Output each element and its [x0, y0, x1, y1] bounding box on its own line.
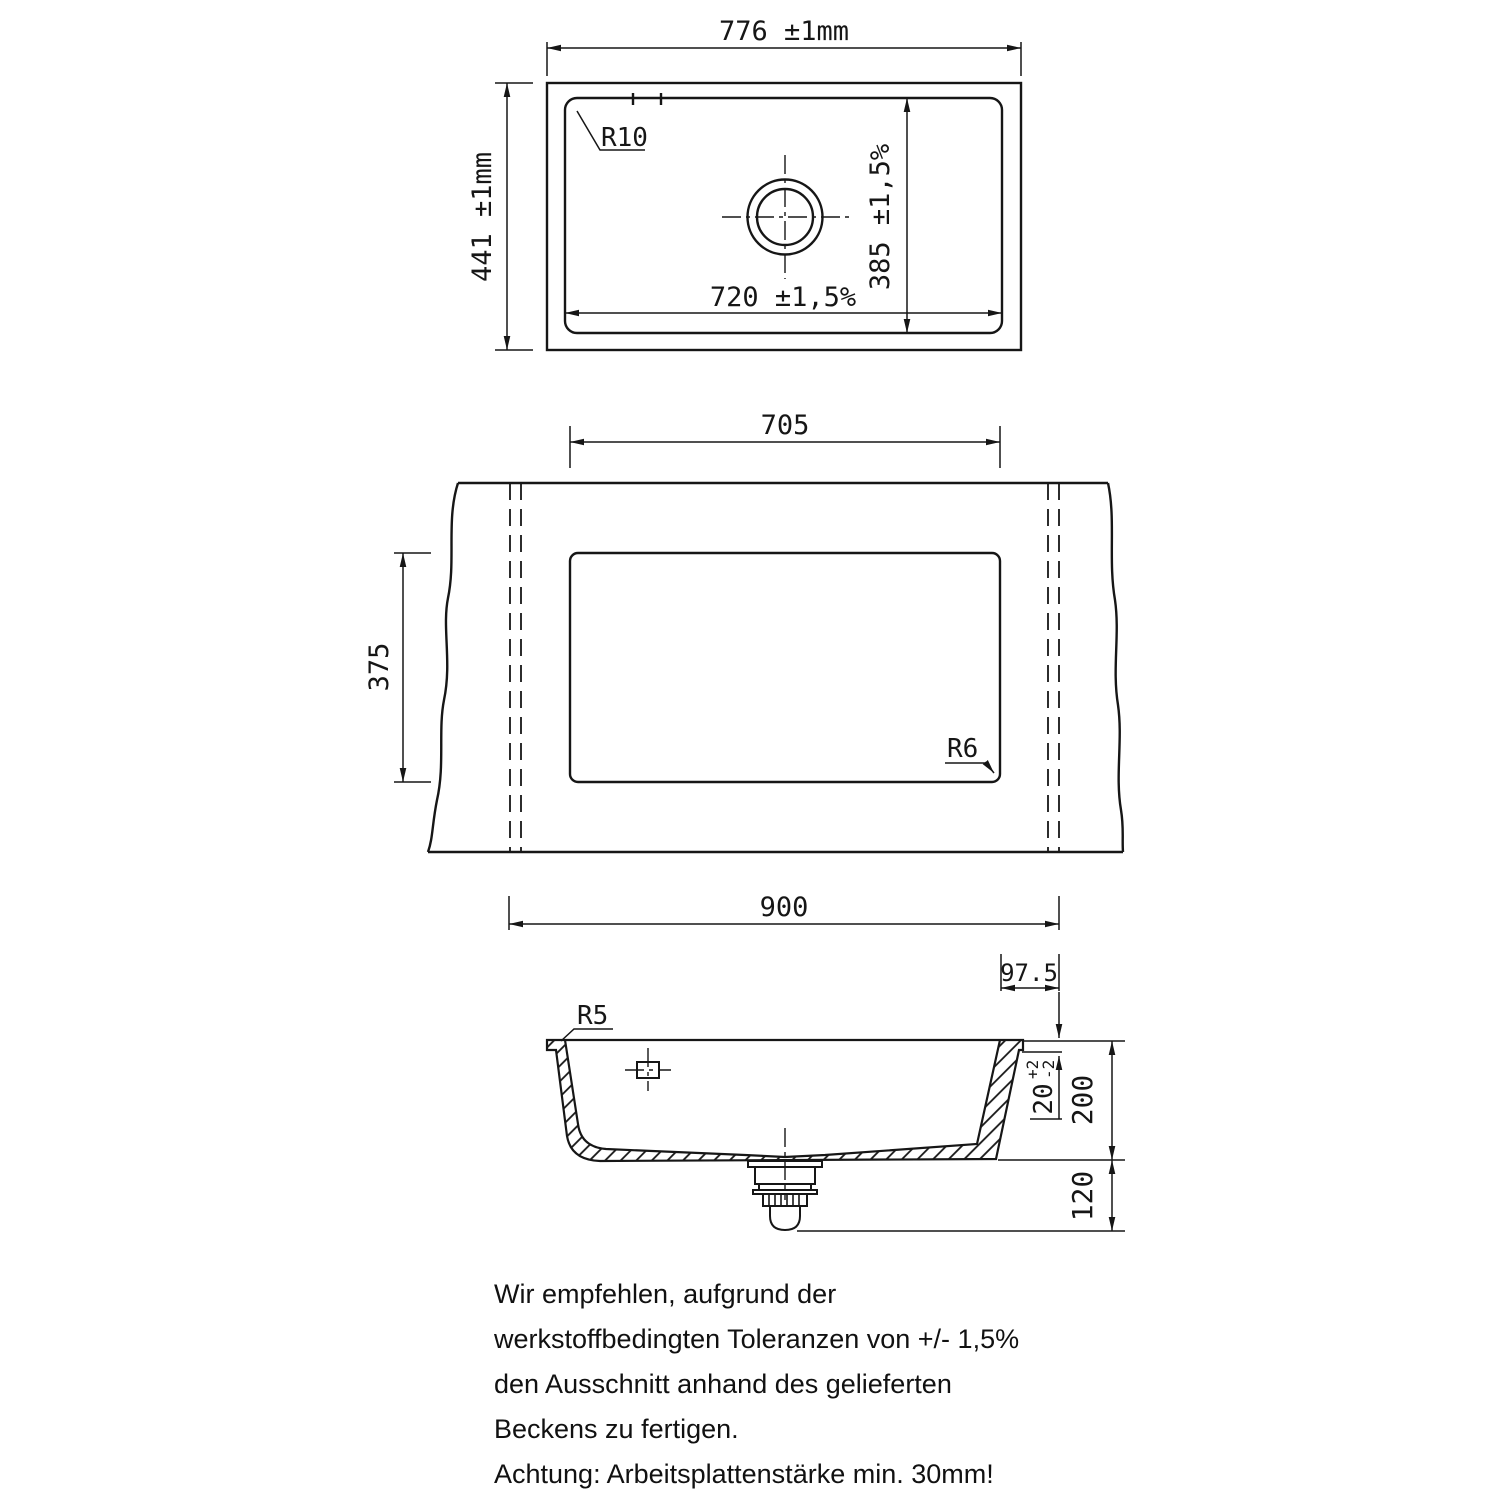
r6-label: R6 — [947, 734, 978, 764]
note-line-2: werkstoffbedingten Toleranzen von +/- 1,… — [494, 1317, 1019, 1362]
bowl-depth-label: 200 — [1066, 1075, 1099, 1126]
outer-width-dimension: 776 ±1mm — [547, 16, 1021, 76]
r5-label: R5 — [577, 1001, 608, 1031]
mounting-step-tol-minus: -2 — [1039, 1060, 1058, 1079]
corner-radius-callout-r6: R6 — [945, 734, 994, 773]
edge-offset-label: 97.5 — [1000, 959, 1058, 987]
basin-depth-dimension: 385 ±1,5% — [865, 98, 907, 333]
drain-clearance-dimension: 120 — [1066, 1160, 1112, 1231]
drain-assembly — [748, 1128, 822, 1230]
cutout-height-dimension: 375 — [364, 553, 431, 782]
sink-top-view: R10 776 ±1mm 441 ±1mm 720 ±1,5% 385 ±1,5… — [467, 16, 1021, 350]
corner-radius-callout-r5: R5 — [561, 1001, 613, 1041]
worktop-width-label: 900 — [760, 892, 809, 923]
mounting-step-dimension: 20 +2 -2 — [1022, 1052, 1062, 1119]
worktop-thickness-warning: Achtung: Arbeitsplattenstärke min. 30mm! — [494, 1459, 994, 1490]
worktop-cutout-view: R6 705 375 900 97.5 — [364, 410, 1123, 1038]
outer-height-dimension: 441 ±1mm — [467, 83, 533, 350]
basin-depth-label: 385 ±1,5% — [865, 144, 896, 290]
outer-height-label: 441 ±1mm — [467, 152, 498, 282]
tolerance-recommendation-note: Wir empfehlen, aufgrund der werkstoffbed… — [494, 1272, 1019, 1452]
cutout-height-label: 375 — [364, 643, 395, 692]
sink-section-view: R5 20 +2 -2 200 120 — [547, 1001, 1125, 1231]
worktop-break-line-right — [1108, 483, 1123, 852]
note-line-1: Wir empfehlen, aufgrund der — [494, 1272, 1019, 1317]
cutout-width-label: 705 — [761, 410, 810, 441]
bowl-depth-dimension: 200 — [1066, 1041, 1112, 1160]
r10-label: R10 — [601, 123, 648, 153]
note-line-3: den Ausschnitt anhand des gelieferten — [494, 1362, 1019, 1407]
cutout-width-dimension: 705 — [570, 410, 1000, 468]
basin-width-label: 720 ±1,5% — [710, 282, 856, 313]
note-line-4: Beckens zu fertigen. — [494, 1407, 1019, 1452]
worktop-break-line-left — [428, 483, 458, 852]
basin-width-dimension: 720 ±1,5% — [565, 282, 1002, 313]
drain-cap — [770, 1206, 800, 1230]
technical-drawing-page: R10 776 ±1mm 441 ±1mm 720 ±1,5% 385 ±1,5… — [0, 0, 1500, 1500]
corner-radius-callout-r10: R10 — [577, 111, 648, 153]
drain-clearance-label: 120 — [1066, 1171, 1099, 1222]
r6-leader-line — [945, 763, 994, 773]
tap-hole-marker — [625, 1048, 671, 1091]
cutout-opening — [570, 553, 1000, 782]
mounting-step-label: 20 — [1029, 1083, 1059, 1114]
edge-offset-dimension: 97.5 — [1000, 954, 1059, 1038]
drain-symbol — [722, 155, 849, 279]
outer-width-label: 776 ±1mm — [719, 16, 849, 47]
worktop-width-dimension: 900 — [509, 892, 1059, 930]
